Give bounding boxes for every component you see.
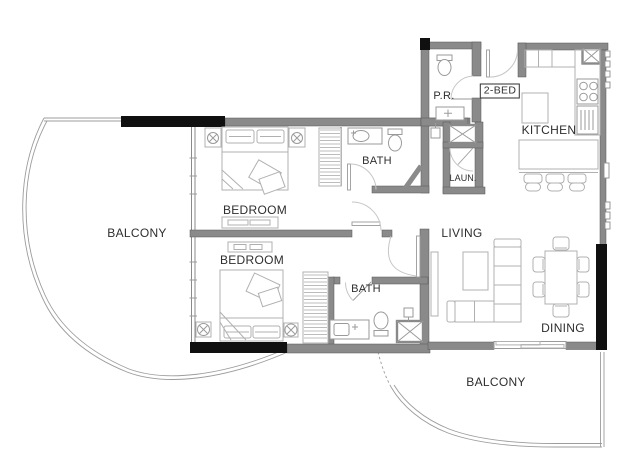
toilet-symbol-powder-room xyxy=(437,55,452,76)
breakfast-bar-symbol xyxy=(519,140,598,173)
room-label-balcony-left: BALCONY xyxy=(107,226,166,240)
bed-symbol-bottom xyxy=(220,270,283,341)
fridge-symbol xyxy=(577,106,598,134)
room-label-bedroom-bottom: BEDROOM xyxy=(220,253,284,267)
room-label-dining: DINING xyxy=(541,321,585,335)
room-label-kitchen: KITCHEN xyxy=(522,123,577,137)
kitchen-island-symbol xyxy=(522,93,548,123)
room-label-bath-bottom: BATH xyxy=(351,283,381,295)
stove-symbol xyxy=(577,79,598,104)
room-label-bath-top: BATH xyxy=(362,155,392,167)
dining-table-symbol xyxy=(533,237,589,317)
unit-type-badge: 2-BED xyxy=(480,84,520,99)
room-label-bedroom-top: BEDROOM xyxy=(223,203,287,217)
window-symbol xyxy=(494,342,566,349)
bedroom-top-door xyxy=(352,202,381,231)
basin-symbol-powder-room xyxy=(436,107,464,120)
room-label-powder-room: P.R. xyxy=(433,90,454,102)
sink-symbol-bath-top xyxy=(348,128,382,144)
tv-console-symbol xyxy=(431,252,438,316)
sofa-symbol xyxy=(447,239,521,322)
laundry-door xyxy=(450,148,473,171)
bath-top-door xyxy=(348,164,377,190)
balcony-railing-bottom xyxy=(378,352,604,447)
bed-symbol-top xyxy=(222,127,288,194)
walls-layer xyxy=(121,38,608,353)
room-label-laundry: LAUN. xyxy=(449,173,476,183)
floor-plan: BALCONY BEDROOM BEDROOM BATH BATH P.R. L… xyxy=(0,0,644,470)
dresser-symbol-top xyxy=(222,217,278,228)
dresser-symbol-bottom xyxy=(228,242,272,252)
wardrobe-symbol-bottom xyxy=(303,272,328,343)
floor-plan-drawing xyxy=(0,0,644,470)
sink-symbol-bath-bottom xyxy=(330,320,369,339)
entry-door xyxy=(487,50,518,78)
room-label-living: LIVING xyxy=(441,226,482,240)
living-door xyxy=(388,236,420,277)
wardrobe-symbol-top xyxy=(319,128,341,186)
room-label-balcony-bottom: BALCONY xyxy=(466,375,525,389)
coffee-table-symbol xyxy=(463,252,488,290)
bar-stools-symbol xyxy=(524,174,586,191)
toilet-symbol-bath-top xyxy=(388,129,402,151)
